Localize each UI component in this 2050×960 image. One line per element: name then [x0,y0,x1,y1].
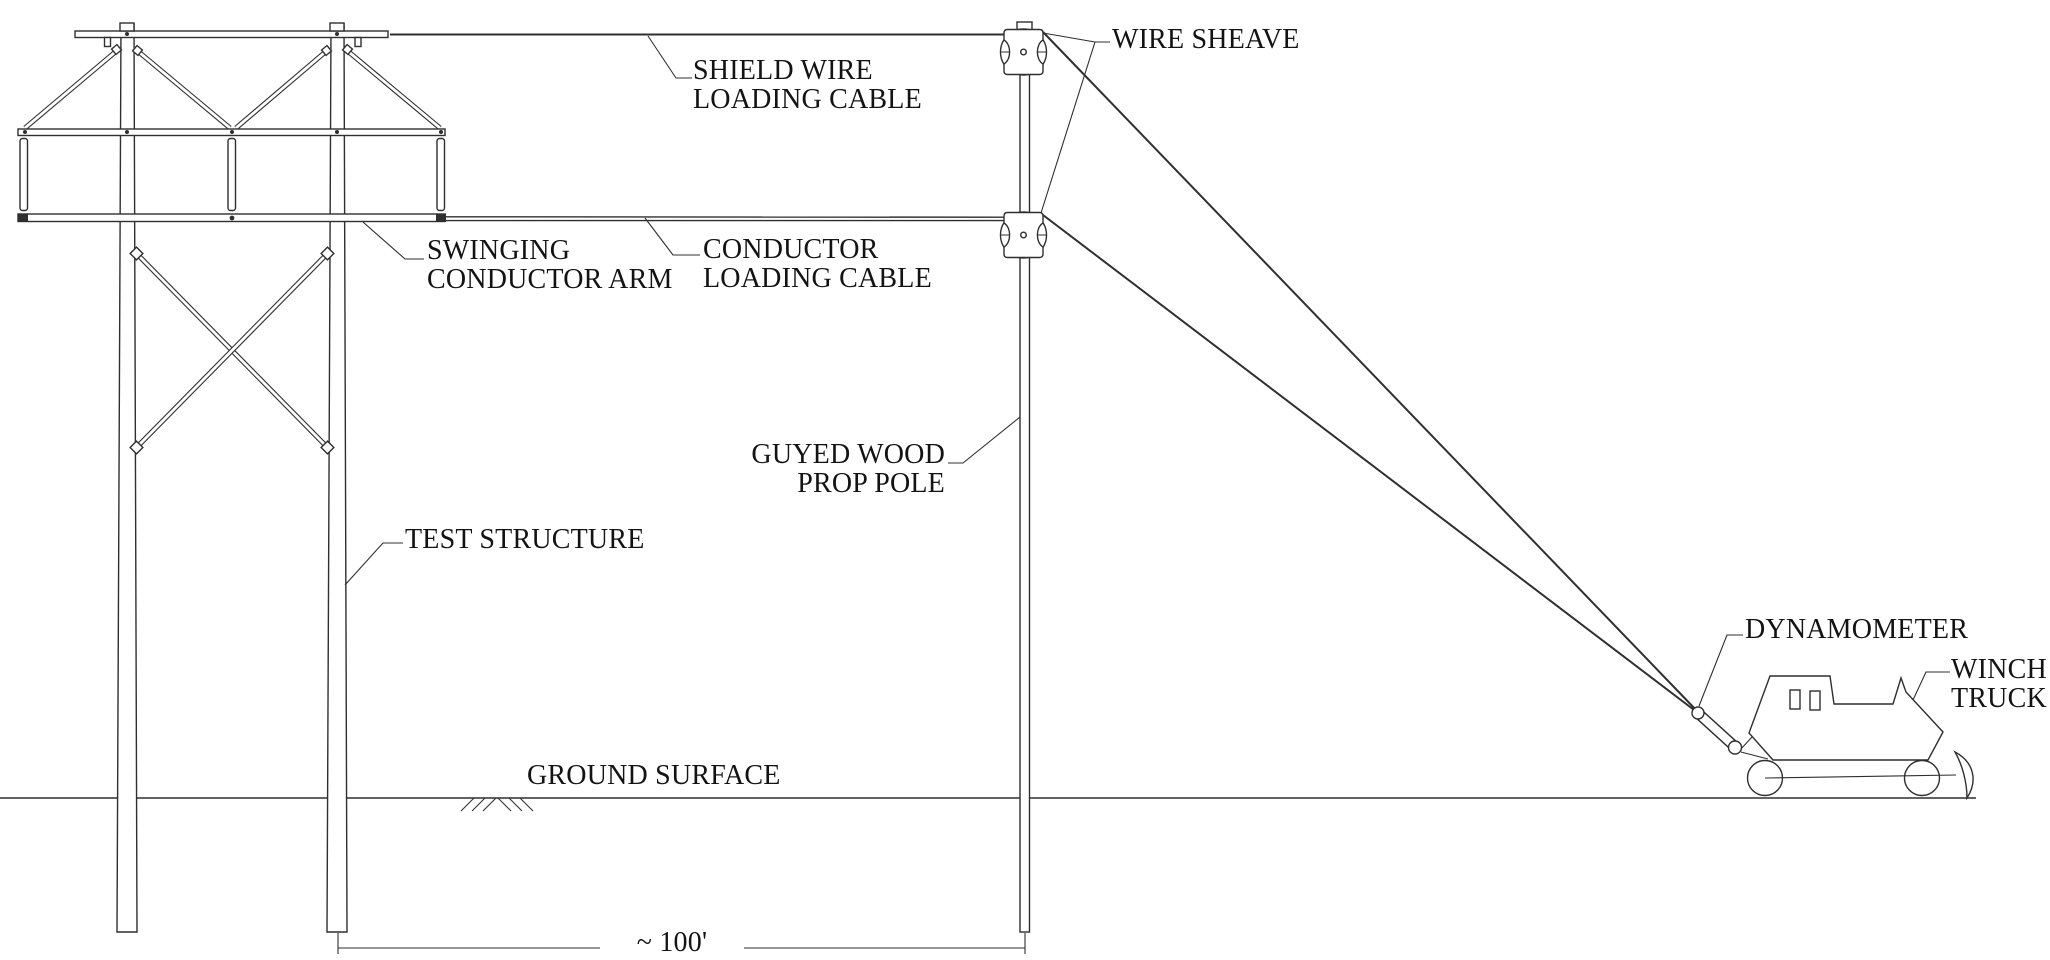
leader-shield-wire [648,36,692,78]
conductor-cable-label: CONDUCTOR LOADING CABLE [703,235,932,293]
leader-wire-sheave-branch [1041,42,1095,213]
dynamometer-label: DYNAMOMETER [1745,615,1968,644]
truck-body [1749,676,1943,760]
leader-swinging-arm [363,222,424,259]
conductor-cable-label-line2: LOADING CABLE [703,264,932,293]
test-structure [18,23,446,932]
swinging-arm-label-line2: CONDUCTOR ARM [427,265,673,294]
shield-wire-label-line1: SHIELD WIRE [693,56,922,85]
guyed-wood-prop-pole [1017,22,1032,932]
leader-test-structure [345,543,403,585]
wire-sheave-label: WIRE SHEAVE [1112,25,1300,54]
winch-truck-label: WINCH TRUCK [1951,655,2047,713]
winch-truck-label-line1: WINCH [1951,655,2047,684]
wire-sheave-bottom [1001,212,1047,258]
ground-surface-label: GROUND SURFACE [527,761,781,790]
ground-hatch-marks [461,798,533,811]
conductor-loading-cable [445,217,1004,221]
truck-blade [1955,752,1973,798]
diagram-canvas: WIRE SHEAVE SHIELD WIRE LOADING CABLE SW… [0,0,2050,960]
span-dimension-label: ~ 100' [602,928,742,957]
leader-lines [345,33,1950,706]
x-brace [130,247,334,454]
leader-winch-truck [1913,672,1950,700]
test-structure-label: TEST STRUCTURE [405,525,645,554]
loading-cables-to-truck [1043,32,1698,713]
leader-wire-sheave [1043,33,1110,42]
winch-truck [1748,676,1974,798]
test-structure-right-pole [327,24,347,932]
ground-surface-line [0,798,1976,811]
guyed-pole-label-line1: GUYED WOOD [715,440,945,469]
linework-layer [0,0,2050,960]
shield-wire-label: SHIELD WIRE LOADING CABLE [693,56,922,114]
swinging-arm-label: SWINGING CONDUCTOR ARM [427,236,673,294]
leader-guyed-pole [948,417,1020,463]
conductor-cable-label-line1: CONDUCTOR [703,235,932,264]
winch-truck-label-line2: TRUCK [1951,684,2047,713]
shield-wire-label-line2: LOADING CABLE [693,85,922,114]
test-structure-left-pole [117,24,137,932]
swinging-conductor-arm [18,32,446,222]
swinging-arm-label-line1: SWINGING [427,236,673,265]
guyed-pole-label: GUYED WOOD PROP POLE [715,440,945,498]
truck-rear-wheel [1905,761,1940,796]
wire-sheave-top [1001,29,1047,75]
leader-dynamometer [1699,635,1743,706]
crossarm-truss-diagonals [25,45,440,128]
guyed-pole-label-line2: PROP POLE [715,469,945,498]
